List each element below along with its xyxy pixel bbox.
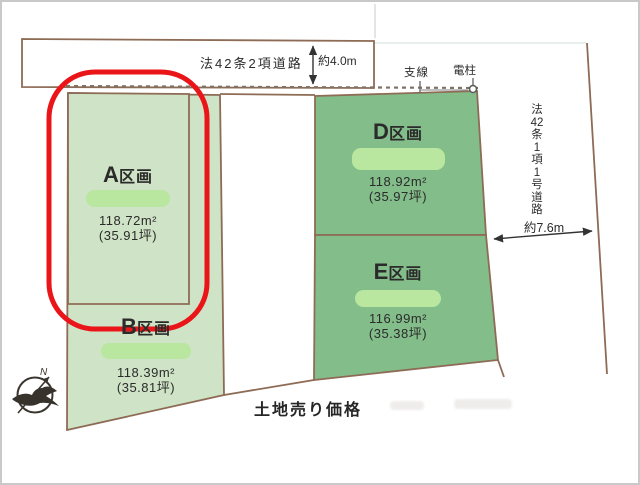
right-road-label-char: 1 [534, 167, 540, 180]
right-road-label-char: 条 [531, 129, 543, 142]
erased-price-smudge [454, 399, 512, 409]
plot-b-info: B 区画 118.39m² (35.81坪) [90, 314, 202, 395]
compass-north-icon: N [12, 367, 59, 413]
right-road-left-edge [498, 360, 504, 377]
plot-suffix: 区画 [389, 120, 423, 144]
support-wire-label: 支線 [404, 64, 429, 80]
plot-e-info: E 区画 116.99m² (35.38坪) [342, 259, 454, 341]
right-road-label-char: 項 [531, 154, 543, 167]
erased-price-smudge [390, 401, 424, 410]
plot-d-info: D 区画 118.92m² (35.97坪) [342, 119, 454, 204]
plot-a-info: A 区画 118.72m² (35.91坪) [72, 162, 184, 243]
plot-d-area-m2: 118.92m² [342, 174, 454, 189]
site-bottom-boundary [224, 380, 314, 395]
price-redaction-pill [355, 290, 441, 307]
plot-a-area-m2: 118.72m² [72, 213, 184, 228]
plot-letter: D [373, 119, 389, 145]
right-road-label-char: 1 [534, 142, 540, 155]
plot-a-title: A 区画 [72, 162, 184, 186]
compass-north-label: N [40, 367, 48, 378]
right-road-label-char: 法 [531, 104, 543, 117]
plot-letter: E [374, 259, 389, 285]
plot-suffix: 区画 [137, 315, 171, 339]
plot-e-area-tsubo: (35.38坪) [342, 326, 454, 341]
price-redaction-pill [352, 148, 445, 170]
plot-top-boundary-segment [220, 94, 315, 95]
plot-suffix: 区画 [388, 260, 422, 284]
plot-letter: A [103, 162, 119, 188]
top-road-label: 法42条2項道路 [200, 53, 303, 72]
plot-b-area-tsubo: (35.81坪) [90, 380, 202, 395]
plot-e-title: E 区画 [342, 259, 454, 283]
price-redaction-pill [86, 190, 170, 207]
right-road-width-label: 約7.6m [508, 217, 580, 236]
plot-suffix: 区画 [119, 163, 153, 187]
utility-pole-icon [470, 86, 477, 93]
top-road-width-label: 約4.0m [318, 52, 357, 69]
plot-letter: B [121, 314, 137, 340]
price-redaction-pill [101, 343, 191, 359]
right-road-label: 法 42 条 1 項 1 号 道 路 [524, 104, 550, 217]
plot-d-title: D 区画 [342, 119, 454, 143]
right-road-right-edge [587, 43, 607, 374]
right-road-label-char: 路 [531, 204, 543, 217]
land-sale-price-label: 土地売り価格 [254, 396, 362, 420]
plot-a-area-tsubo: (35.91坪) [72, 228, 184, 243]
plot-d-area-tsubo: (35.97坪) [342, 189, 454, 204]
right-road-label-char: 道 [531, 192, 543, 205]
utility-pole-label: 電柱 [453, 62, 476, 78]
land-plot-diagram: N 法42条2項道路 約4.0m 支線 電柱 法 42 条 1 項 1 号 道 … [0, 0, 640, 485]
plot-e-area-m2: 116.99m² [342, 311, 454, 326]
plot-b-area-m2: 118.39m² [90, 365, 202, 380]
right-road-label-char: 42 [531, 117, 544, 130]
plot-b-title: B 区画 [90, 314, 202, 338]
right-road-label-char: 号 [531, 179, 543, 192]
